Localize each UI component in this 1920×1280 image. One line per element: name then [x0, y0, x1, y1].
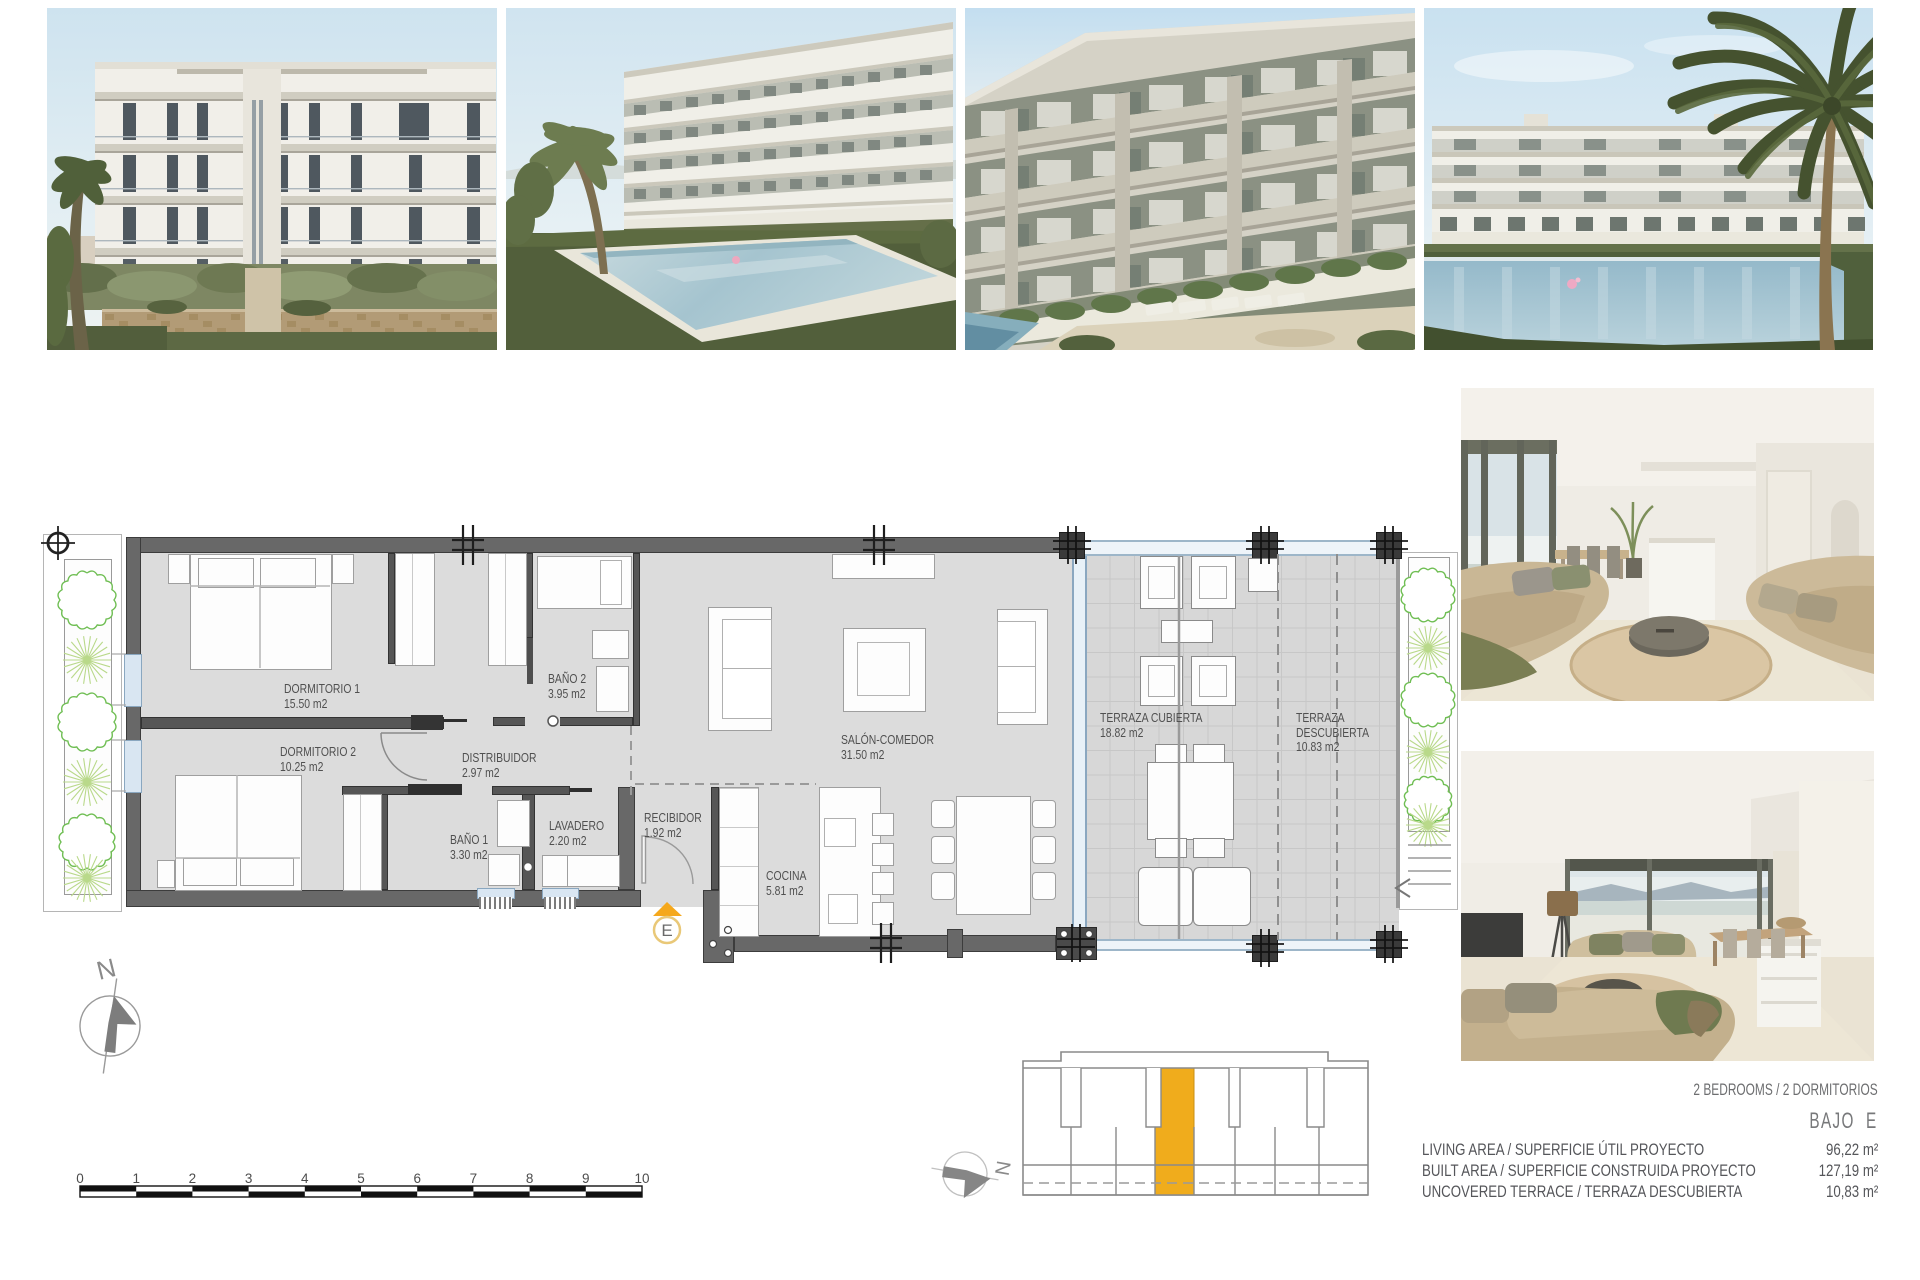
svg-text:1: 1	[132, 1171, 140, 1186]
svg-text:2: 2	[189, 1171, 197, 1186]
svg-text:3: 3	[245, 1171, 253, 1186]
svg-text:E: E	[661, 921, 672, 940]
svg-text:0: 0	[76, 1171, 84, 1186]
svg-text:5: 5	[357, 1171, 365, 1186]
svg-text:6: 6	[413, 1171, 421, 1186]
svg-text:N: N	[94, 952, 119, 986]
svg-text:4: 4	[301, 1171, 309, 1186]
svg-text:N: N	[990, 1159, 1014, 1177]
svg-text:10: 10	[634, 1171, 649, 1186]
svg-text:9: 9	[582, 1171, 590, 1186]
svg-text:8: 8	[526, 1171, 534, 1186]
svg-text:7: 7	[470, 1171, 478, 1186]
